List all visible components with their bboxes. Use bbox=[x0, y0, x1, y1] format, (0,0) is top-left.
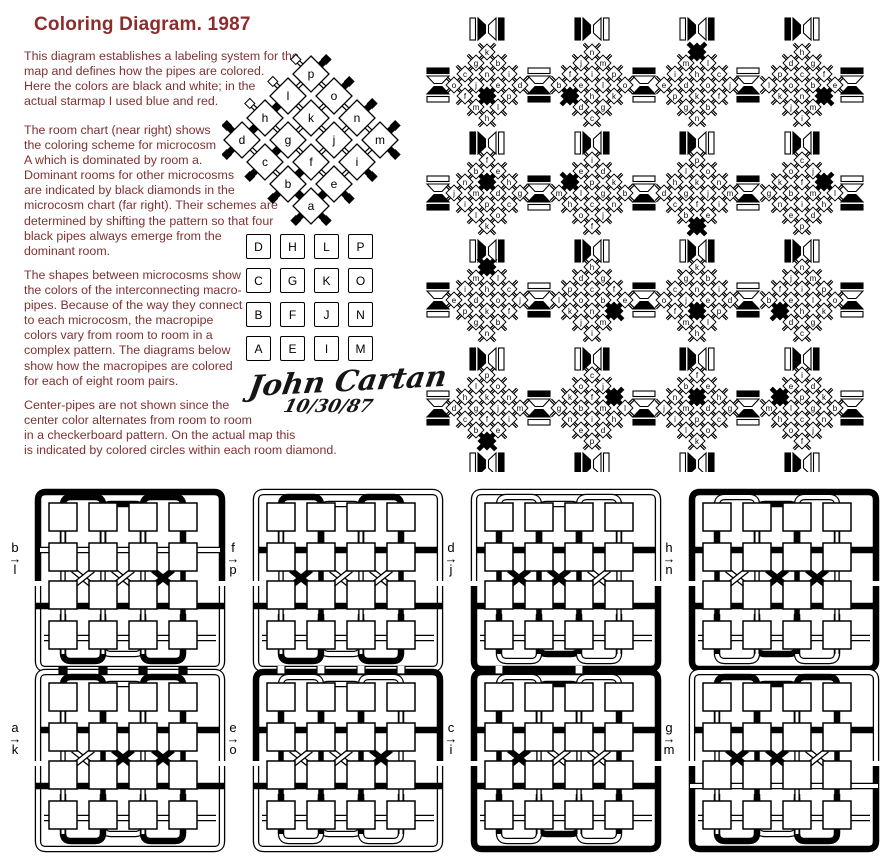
svg-text:c: c bbox=[800, 415, 804, 424]
svg-text:n: n bbox=[822, 415, 826, 424]
coloring-diagram-page: Coloring Diagram. 1987 This diagram esta… bbox=[0, 0, 887, 852]
svg-text:n: n bbox=[568, 415, 572, 424]
microcosm-cluster-r1c4: hdgpcflobeknjmi bbox=[761, 44, 844, 127]
svg-text:b: b bbox=[557, 81, 562, 90]
svg-text:c: c bbox=[507, 285, 511, 294]
svg-text:g: g bbox=[285, 133, 292, 147]
svg-text:c: c bbox=[507, 200, 511, 209]
svg-text:c: c bbox=[590, 114, 594, 123]
letter-grid-cell-N: N bbox=[348, 302, 373, 327]
svg-text:d: d bbox=[474, 296, 478, 305]
pipe-diagram-label-e-o: e→o bbox=[222, 722, 244, 756]
svg-text:p: p bbox=[778, 70, 783, 79]
svg-text:m: m bbox=[810, 189, 817, 198]
svg-text:o: o bbox=[452, 81, 457, 90]
svg-text:l: l bbox=[624, 404, 626, 413]
svg-text:j: j bbox=[474, 81, 477, 90]
svg-text:e: e bbox=[623, 296, 628, 305]
svg-text:j: j bbox=[579, 318, 582, 327]
svg-text:p: p bbox=[463, 307, 468, 316]
letter-grid-cell-O: O bbox=[348, 268, 373, 293]
svg-text:b: b bbox=[706, 103, 711, 112]
svg-text:h: h bbox=[800, 48, 804, 57]
microcosm-cluster-r3c3: kgbcniojedfpmlh bbox=[656, 259, 739, 342]
svg-text:o: o bbox=[496, 211, 501, 220]
svg-text:c: c bbox=[800, 70, 804, 79]
svg-text:l: l bbox=[707, 59, 709, 68]
svg-text:g: g bbox=[518, 189, 522, 198]
svg-text:i: i bbox=[464, 200, 466, 209]
svg-text:b: b bbox=[684, 211, 689, 220]
svg-text:o: o bbox=[623, 81, 628, 90]
svg-text:c: c bbox=[463, 415, 467, 424]
page-title: Coloring Diagram. 1987 bbox=[34, 14, 251, 36]
svg-text:d: d bbox=[728, 296, 732, 305]
pipe-diagram-d-j bbox=[466, 486, 666, 676]
svg-text:p: p bbox=[673, 92, 678, 101]
pipe-diagram-label-h-n: h→n bbox=[658, 542, 680, 576]
svg-text:o: o bbox=[789, 167, 794, 176]
svg-text:b: b bbox=[623, 189, 628, 198]
svg-text:m: m bbox=[556, 189, 563, 198]
svg-text:b: b bbox=[601, 296, 606, 305]
svg-text:i: i bbox=[591, 70, 593, 79]
svg-text:i: i bbox=[801, 285, 803, 294]
letter-grid-cell-P: P bbox=[348, 234, 373, 259]
svg-text:j: j bbox=[452, 189, 455, 198]
svg-text:n: n bbox=[485, 329, 489, 338]
svg-text:c: c bbox=[262, 155, 268, 169]
svg-text:g: g bbox=[601, 103, 605, 112]
svg-text:b: b bbox=[496, 59, 501, 68]
svg-text:g: g bbox=[601, 274, 605, 283]
svg-text:d: d bbox=[579, 103, 583, 112]
svg-text:o: o bbox=[496, 296, 501, 305]
svg-text:p: p bbox=[485, 200, 490, 209]
microcosm-cluster-r2c1: fbenhjmdgipclok bbox=[446, 152, 529, 235]
svg-text:l: l bbox=[475, 382, 477, 391]
svg-text:i: i bbox=[591, 156, 593, 165]
svg-text:e: e bbox=[789, 211, 794, 220]
svg-text:h: h bbox=[590, 92, 594, 101]
svg-text:p: p bbox=[507, 92, 512, 101]
svg-text:p: p bbox=[485, 371, 490, 380]
letter-grid-cell-L: L bbox=[314, 234, 339, 259]
svg-text:o: o bbox=[496, 382, 501, 391]
svg-text:e: e bbox=[331, 177, 338, 191]
svg-text:i: i bbox=[801, 114, 803, 123]
svg-text:o: o bbox=[833, 296, 838, 305]
svg-text:o: o bbox=[706, 81, 711, 90]
svg-text:o: o bbox=[662, 296, 667, 305]
svg-text:d: d bbox=[579, 274, 583, 283]
pipe-diagram-e-o bbox=[248, 666, 448, 856]
svg-text:h: h bbox=[463, 393, 467, 402]
svg-text:d: d bbox=[789, 59, 793, 68]
svg-text:c: c bbox=[590, 200, 594, 209]
room-chart: dhlpcgkobfjnaeim bbox=[222, 48, 422, 238]
pipe-diagram-a-k bbox=[30, 666, 230, 856]
svg-text:h: h bbox=[800, 307, 804, 316]
svg-text:g: g bbox=[474, 404, 478, 413]
svg-text:e: e bbox=[579, 167, 584, 176]
svg-text:d: d bbox=[452, 404, 456, 413]
svg-text:l: l bbox=[475, 211, 477, 220]
svg-text:a: a bbox=[308, 199, 315, 213]
svg-text:g: g bbox=[811, 404, 815, 413]
svg-text:o: o bbox=[706, 167, 711, 176]
pipe-diagram-label-d-j: d→j bbox=[440, 542, 462, 576]
svg-text:c: c bbox=[717, 70, 721, 79]
svg-text:n: n bbox=[507, 393, 511, 402]
microcosm-cluster-r2c4: cojkfgbmlnihedp bbox=[761, 152, 844, 235]
svg-text:m: m bbox=[810, 103, 817, 112]
svg-text:c: c bbox=[717, 415, 721, 424]
svg-text:d: d bbox=[239, 133, 246, 147]
microcosm-cluster-r4c2: cojkfgbmlnihedp bbox=[551, 367, 634, 450]
svg-text:i: i bbox=[356, 155, 359, 169]
svg-text:c: c bbox=[800, 329, 804, 338]
svg-text:d: d bbox=[601, 426, 605, 435]
pipe-diagram-label-f-p: f→p bbox=[222, 542, 244, 576]
signature: John Cartan 10/30/87 bbox=[250, 364, 446, 417]
svg-text:j: j bbox=[811, 167, 814, 176]
svg-text:i: i bbox=[718, 200, 720, 209]
svg-text:j: j bbox=[662, 404, 665, 413]
svg-text:i: i bbox=[508, 70, 510, 79]
microcosm-cluster-r3c2: hdgpcflobeknjmi bbox=[551, 259, 634, 342]
svg-text:d: d bbox=[706, 404, 710, 413]
pipe-diagram-label-g-m: g→m bbox=[658, 722, 680, 756]
svg-text:n: n bbox=[590, 307, 594, 316]
microcosm-cluster-r1c2: njmfipbelohkdgc bbox=[551, 44, 634, 127]
svg-text:l: l bbox=[497, 103, 499, 112]
svg-text:o: o bbox=[706, 426, 711, 435]
svg-text:g: g bbox=[474, 59, 478, 68]
svg-text:k: k bbox=[308, 111, 315, 125]
svg-text:c: c bbox=[673, 285, 677, 294]
svg-text:o: o bbox=[331, 89, 338, 103]
svg-text:b: b bbox=[285, 177, 292, 191]
svg-text:o: o bbox=[789, 81, 794, 90]
letter-grid-cell-C: C bbox=[246, 268, 271, 293]
svg-text:l: l bbox=[790, 404, 792, 413]
svg-text:d: d bbox=[496, 189, 500, 198]
svg-text:m: m bbox=[473, 189, 480, 198]
svg-text:m: m bbox=[600, 318, 607, 327]
svg-text:b: b bbox=[579, 404, 584, 413]
svg-text:o: o bbox=[579, 382, 584, 391]
svg-text:c: c bbox=[590, 285, 594, 294]
svg-text:b: b bbox=[474, 426, 479, 435]
svg-text:i: i bbox=[674, 70, 676, 79]
microcosm-cluster-r2c2: iedpkmlgbhcnojf bbox=[551, 152, 634, 235]
svg-text:i: i bbox=[591, 415, 593, 424]
pipe-diagram-h-n bbox=[684, 486, 884, 676]
svg-text:h: h bbox=[590, 263, 594, 272]
svg-text:n: n bbox=[800, 263, 804, 272]
microcosm-cluster-r1c1: kgbcniojedfpmlh bbox=[446, 44, 529, 127]
svg-text:m: m bbox=[683, 318, 690, 327]
svg-text:g: g bbox=[474, 318, 478, 327]
svg-text:m: m bbox=[600, 404, 607, 413]
letter-grid-cell-K: K bbox=[314, 268, 339, 293]
svg-text:g: g bbox=[601, 189, 605, 198]
svg-text:h: h bbox=[695, 70, 699, 79]
svg-text:j: j bbox=[789, 103, 792, 112]
svg-text:c: c bbox=[673, 200, 677, 209]
svg-text:o: o bbox=[789, 426, 794, 435]
svg-text:n: n bbox=[800, 92, 804, 101]
svg-text:h: h bbox=[568, 200, 572, 209]
pipe-diagram-label-c-i: c→i bbox=[440, 722, 462, 756]
svg-text:b: b bbox=[496, 318, 501, 327]
letter-grid-cell-F: F bbox=[280, 302, 305, 327]
svg-text:j: j bbox=[601, 382, 604, 391]
svg-text:i: i bbox=[464, 285, 466, 294]
svg-text:e: e bbox=[789, 382, 794, 391]
microcosm-cluster-r3c1: mlihcedojpkfgbn bbox=[446, 258, 529, 342]
svg-text:b: b bbox=[833, 404, 838, 413]
pipe-diagram-b-l bbox=[30, 486, 230, 676]
svg-text:j: j bbox=[601, 211, 604, 220]
svg-text:i: i bbox=[674, 415, 676, 424]
svg-text:h: h bbox=[778, 415, 782, 424]
svg-text:j: j bbox=[684, 296, 687, 305]
svg-text:l: l bbox=[834, 189, 836, 198]
svg-text:j: j bbox=[518, 296, 521, 305]
svg-text:n: n bbox=[717, 178, 721, 187]
svg-text:n: n bbox=[695, 285, 699, 294]
svg-text:b: b bbox=[767, 296, 772, 305]
svg-text:l: l bbox=[497, 274, 499, 283]
svg-text:n: n bbox=[354, 111, 361, 125]
svg-text:n: n bbox=[485, 70, 489, 79]
svg-text:d: d bbox=[662, 189, 666, 198]
svg-text:b: b bbox=[811, 81, 816, 90]
pipe-diagram-c-i bbox=[466, 666, 666, 856]
letter-grid-cell-I: I bbox=[314, 336, 339, 361]
svg-text:g: g bbox=[684, 274, 688, 283]
svg-text:p: p bbox=[800, 393, 805, 402]
svg-text:g: g bbox=[728, 404, 732, 413]
svg-text:j: j bbox=[332, 133, 336, 147]
svg-text:l: l bbox=[812, 296, 814, 305]
svg-text:h: h bbox=[612, 415, 616, 424]
svg-text:p: p bbox=[717, 307, 722, 316]
svg-text:p: p bbox=[695, 415, 700, 424]
svg-text:p: p bbox=[800, 222, 805, 231]
svg-text:d: d bbox=[811, 211, 815, 220]
svg-text:j: j bbox=[789, 274, 792, 283]
microcosm-cluster-r1c3: mlihcedojpkfgbn bbox=[656, 43, 739, 127]
svg-text:j: j bbox=[579, 59, 582, 68]
svg-text:c: c bbox=[463, 70, 467, 79]
svg-text:b: b bbox=[684, 382, 689, 391]
microcosm-cluster-r4c4: iedpkmlgbhcnojf bbox=[761, 367, 844, 450]
svg-text:l: l bbox=[768, 81, 770, 90]
svg-text:j: j bbox=[706, 189, 709, 198]
svg-text:e: e bbox=[496, 426, 501, 435]
letter-grid-cell-H: H bbox=[280, 234, 305, 259]
svg-text:d: d bbox=[518, 81, 522, 90]
svg-text:e: e bbox=[662, 81, 667, 90]
svg-text:d: d bbox=[811, 382, 815, 391]
svg-text:n: n bbox=[590, 48, 594, 57]
svg-text:m: m bbox=[517, 404, 524, 413]
svg-text:d: d bbox=[789, 318, 793, 327]
svg-text:l: l bbox=[685, 167, 687, 176]
svg-text:j: j bbox=[811, 426, 814, 435]
svg-text:b: b bbox=[706, 274, 711, 283]
svg-text:n: n bbox=[695, 114, 699, 123]
letter-grid-cell-E: E bbox=[280, 336, 305, 361]
svg-text:j: j bbox=[496, 404, 499, 413]
svg-text:m: m bbox=[683, 59, 690, 68]
svg-text:n: n bbox=[673, 393, 677, 402]
svg-text:i: i bbox=[801, 371, 803, 380]
svg-text:l: l bbox=[602, 81, 604, 90]
svg-text:e: e bbox=[579, 81, 584, 90]
svg-text:p: p bbox=[822, 285, 827, 294]
svg-text:n: n bbox=[778, 200, 782, 209]
microcosm-cluster-r2c3: plohkndgjmcfibe bbox=[656, 152, 739, 236]
svg-text:m: m bbox=[727, 189, 734, 198]
svg-text:l: l bbox=[685, 426, 687, 435]
svg-text:b: b bbox=[474, 167, 479, 176]
svg-text:c: c bbox=[800, 156, 804, 165]
pipe-diagram-label-a-k: a→k bbox=[4, 722, 26, 756]
svg-text:n: n bbox=[463, 178, 467, 187]
svg-text:h: h bbox=[262, 111, 269, 125]
letter-grid-cell-B: B bbox=[246, 302, 271, 327]
svg-text:p: p bbox=[695, 156, 700, 165]
svg-text:i: i bbox=[508, 415, 510, 424]
svg-text:h: h bbox=[673, 178, 677, 187]
pipe-diagram-g-m bbox=[684, 666, 884, 856]
svg-text:p: p bbox=[308, 67, 315, 81]
svg-text:d: d bbox=[684, 81, 688, 90]
svg-text:i: i bbox=[718, 285, 720, 294]
pipe-diagram-f-p bbox=[248, 486, 448, 676]
svg-text:g: g bbox=[684, 189, 688, 198]
svg-text:h: h bbox=[507, 178, 511, 187]
microcosm-chart: kgbcniojedfpmlhnjmfipbelohkdgcmlihcedojp… bbox=[418, 6, 887, 472]
svg-text:e: e bbox=[706, 296, 711, 305]
svg-text:m: m bbox=[600, 59, 607, 68]
room-chart-body: dhlpcgkobfjnaeim bbox=[222, 54, 401, 226]
svg-text:l: l bbox=[558, 296, 560, 305]
svg-text:n: n bbox=[612, 200, 616, 209]
svg-text:p: p bbox=[590, 178, 595, 187]
svg-text:g: g bbox=[684, 103, 688, 112]
svg-text:o: o bbox=[579, 296, 584, 305]
svg-text:h: h bbox=[822, 200, 826, 209]
svg-text:m: m bbox=[473, 274, 480, 283]
svg-text:m: m bbox=[766, 404, 773, 413]
svg-text:e: e bbox=[452, 296, 457, 305]
svg-text:g: g bbox=[767, 189, 771, 198]
svg-text:p: p bbox=[590, 437, 595, 446]
svg-text:m: m bbox=[683, 404, 690, 413]
svg-text:e: e bbox=[706, 211, 711, 220]
svg-text:i: i bbox=[801, 200, 803, 209]
svg-text:l: l bbox=[580, 189, 582, 198]
microcosm-cluster-r4c3: fbenhjmdgipclok bbox=[656, 367, 739, 450]
svg-text:p: p bbox=[568, 285, 573, 294]
svg-text:e: e bbox=[496, 81, 501, 90]
svg-text:h: h bbox=[485, 285, 489, 294]
svg-text:e: e bbox=[789, 296, 794, 305]
pipe-diagram-label-b-l: b→l bbox=[4, 542, 26, 576]
svg-text:l: l bbox=[707, 318, 709, 327]
svg-text:m: m bbox=[810, 274, 817, 283]
svg-text:h: h bbox=[717, 393, 721, 402]
svg-text:g: g bbox=[811, 59, 815, 68]
svg-text:m: m bbox=[473, 103, 480, 112]
letter-grid-cell-M: M bbox=[348, 336, 373, 361]
svg-text:i: i bbox=[591, 329, 593, 338]
svg-text:h: h bbox=[485, 114, 489, 123]
svg-text:g: g bbox=[811, 318, 815, 327]
svg-text:g: g bbox=[557, 404, 561, 413]
svg-text:b: b bbox=[789, 189, 794, 198]
svg-text:o: o bbox=[579, 211, 584, 220]
svg-text:c: c bbox=[590, 371, 594, 380]
letter-grid-cell-G: G bbox=[280, 268, 305, 293]
letter-grid-cell-A: A bbox=[246, 336, 271, 361]
svg-text:d: d bbox=[601, 167, 605, 176]
svg-text:e: e bbox=[833, 81, 838, 90]
svg-text:m: m bbox=[375, 133, 385, 147]
svg-text:h: h bbox=[695, 329, 699, 338]
svg-text:j: j bbox=[728, 81, 731, 90]
letter-grid-cell-D: D bbox=[246, 234, 271, 259]
svg-text:e: e bbox=[496, 167, 501, 176]
microcosm-cluster-r4c1: plohkndgjmcfibe bbox=[446, 367, 529, 451]
svg-text:e: e bbox=[579, 426, 584, 435]
microcosm-cluster-r3c4: njmfipbelohkdgc bbox=[761, 259, 844, 342]
svg-text:l: l bbox=[287, 89, 290, 103]
letter-grid-cell-J: J bbox=[314, 302, 339, 327]
svg-text:p: p bbox=[612, 70, 617, 79]
svg-text:e: e bbox=[706, 382, 711, 391]
